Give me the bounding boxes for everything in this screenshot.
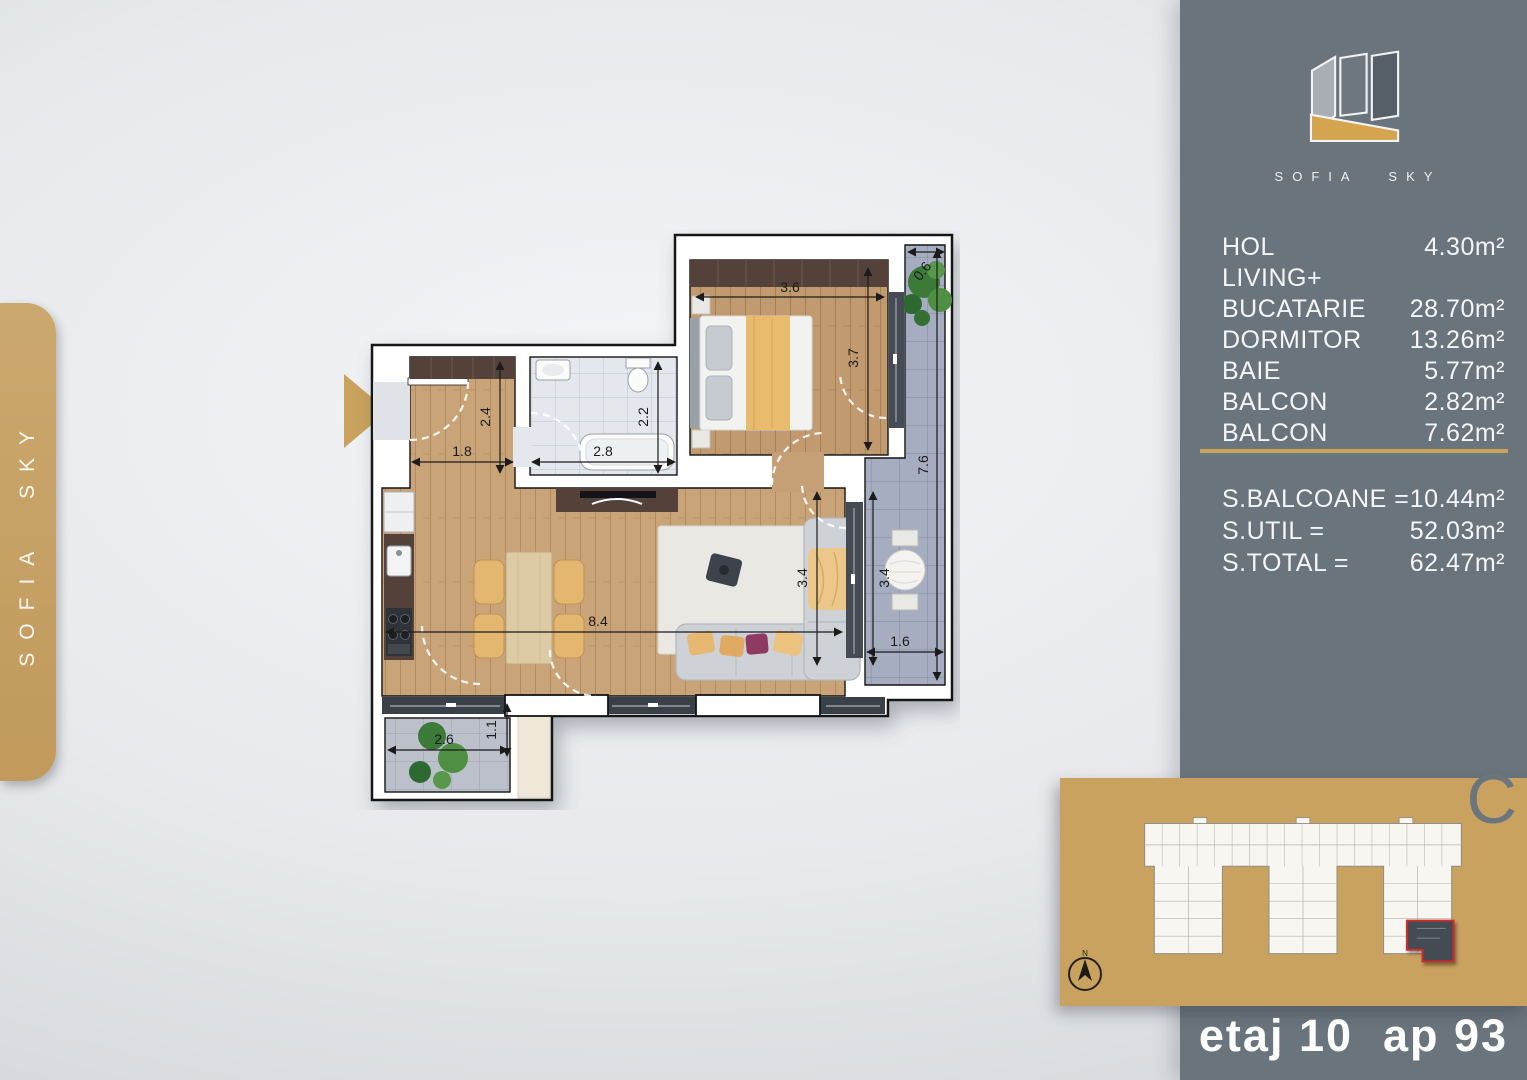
bathroom-sink (536, 360, 570, 380)
apartment-id-footer: etaj 10 ap 93 (1180, 1010, 1527, 1062)
dim-left-balcony-height: 1.1 (483, 720, 499, 740)
brand-side-tab-label: SOFIA SKY (16, 418, 40, 667)
hall-wardrobe (410, 357, 515, 379)
room-label: BALCON (1222, 387, 1328, 418)
room-area: 2.82m² (1424, 387, 1505, 418)
room-label: DORMITOR (1222, 325, 1362, 356)
room-area: 4.30m² (1424, 232, 1505, 263)
room-row: DORMITOR 13.26m² (1222, 325, 1505, 356)
total-value: 62.47m² (1410, 547, 1505, 579)
dim-bedroom-height: 3.7 (845, 348, 861, 368)
room-area: 7.62m² (1424, 418, 1505, 449)
dim-hall-height: 2.4 (477, 407, 493, 427)
room-area: 13.26m² (1410, 325, 1505, 356)
total-row: S.UTIL = 52.03m² (1222, 515, 1505, 547)
dim-bath-height: 2.2 (635, 407, 651, 427)
total-label: S.BALCOANE = (1222, 483, 1409, 515)
total-value: 52.03m² (1410, 515, 1505, 547)
apartment-label: ap 93 (1383, 1010, 1508, 1062)
dim-living-height: 3.4 (794, 568, 810, 588)
dim-balcony-bottom-width: 1.6 (890, 633, 910, 649)
room-row: BAIE 5.77m² (1222, 356, 1505, 387)
dim-bath-width: 2.8 (593, 443, 613, 459)
room-label: BAIE (1222, 356, 1281, 387)
dim-balcony-height: 7.6 (915, 455, 931, 475)
brand-logo: SOFIA SKY (1180, 42, 1527, 184)
dim-balcony-bottom-height: 3.4 (876, 568, 892, 588)
page: SOFIA SKY (0, 0, 1527, 1080)
room-area-list: HOL 4.30m² LIVING+ BUCATARIE 28.70m² DOR… (1222, 232, 1505, 449)
tv-stand (556, 488, 678, 512)
room-area: 5.77m² (1424, 356, 1505, 387)
kitchen-unit (384, 492, 414, 660)
sofia-sky-logo-icon (1291, 42, 1417, 158)
room-row: BUCATARIE 28.70m² (1222, 294, 1505, 325)
room-label: HOL (1222, 232, 1275, 263)
highlighted-apartment (1407, 921, 1454, 962)
logo-wordmark: SOFIA SKY (1180, 169, 1527, 184)
room-row: LIVING+ (1222, 263, 1505, 294)
gold-divider (1200, 449, 1508, 453)
exterior-wall-band (518, 716, 550, 798)
room-row: BALCON 7.62m² (1222, 418, 1505, 449)
room-label: BUCATARIE (1222, 294, 1366, 325)
total-row: S.TOTAL = 62.47m² (1222, 547, 1505, 579)
dim-living-width: 8.4 (588, 613, 608, 629)
total-row: S.BALCOANE = 10.44m² (1222, 483, 1505, 515)
bed (690, 296, 812, 448)
apartment-floor-plan: 3.6 3.7 0.6 7.6 2.4 1.8 2.8 2.2 8.4 3.4 … (340, 230, 960, 810)
compass-north-label: N (1082, 949, 1088, 958)
entrance-door-opening (373, 382, 410, 440)
totals-list: S.BALCOANE = 10.44m² S.UTIL = 52.03m² S.… (1222, 483, 1505, 579)
room-row: HOL 4.30m² (1222, 232, 1505, 263)
entrance-door-leaf (408, 378, 468, 385)
bathroom-toilet (626, 358, 650, 392)
bathroom-door-opening (513, 427, 532, 467)
room-label: BALCON (1222, 418, 1328, 449)
building-key-plan (1126, 806, 1480, 976)
room-label: LIVING+ (1222, 263, 1322, 294)
compass-icon: N (1062, 948, 1108, 996)
dim-bedroom-width: 3.6 (780, 279, 800, 295)
total-label: S.UTIL = (1222, 515, 1324, 547)
dim-left-balcony-width: 2.6 (434, 731, 454, 747)
total-value: 10.44m² (1410, 483, 1505, 515)
brand-side-tab: SOFIA SKY (0, 303, 56, 781)
info-sidebar: SOFIA SKY HOL 4.30m² LIVING+ BUCATARIE 2… (1180, 0, 1527, 1080)
total-label: S.TOTAL = (1222, 547, 1349, 579)
room-area: 28.70m² (1410, 294, 1505, 325)
floor-label: etaj 10 (1199, 1010, 1353, 1062)
key-plan-panel: C N (1060, 778, 1527, 1006)
room-row: BALCON 2.82m² (1222, 387, 1505, 418)
dim-hall-width: 1.8 (452, 443, 472, 459)
